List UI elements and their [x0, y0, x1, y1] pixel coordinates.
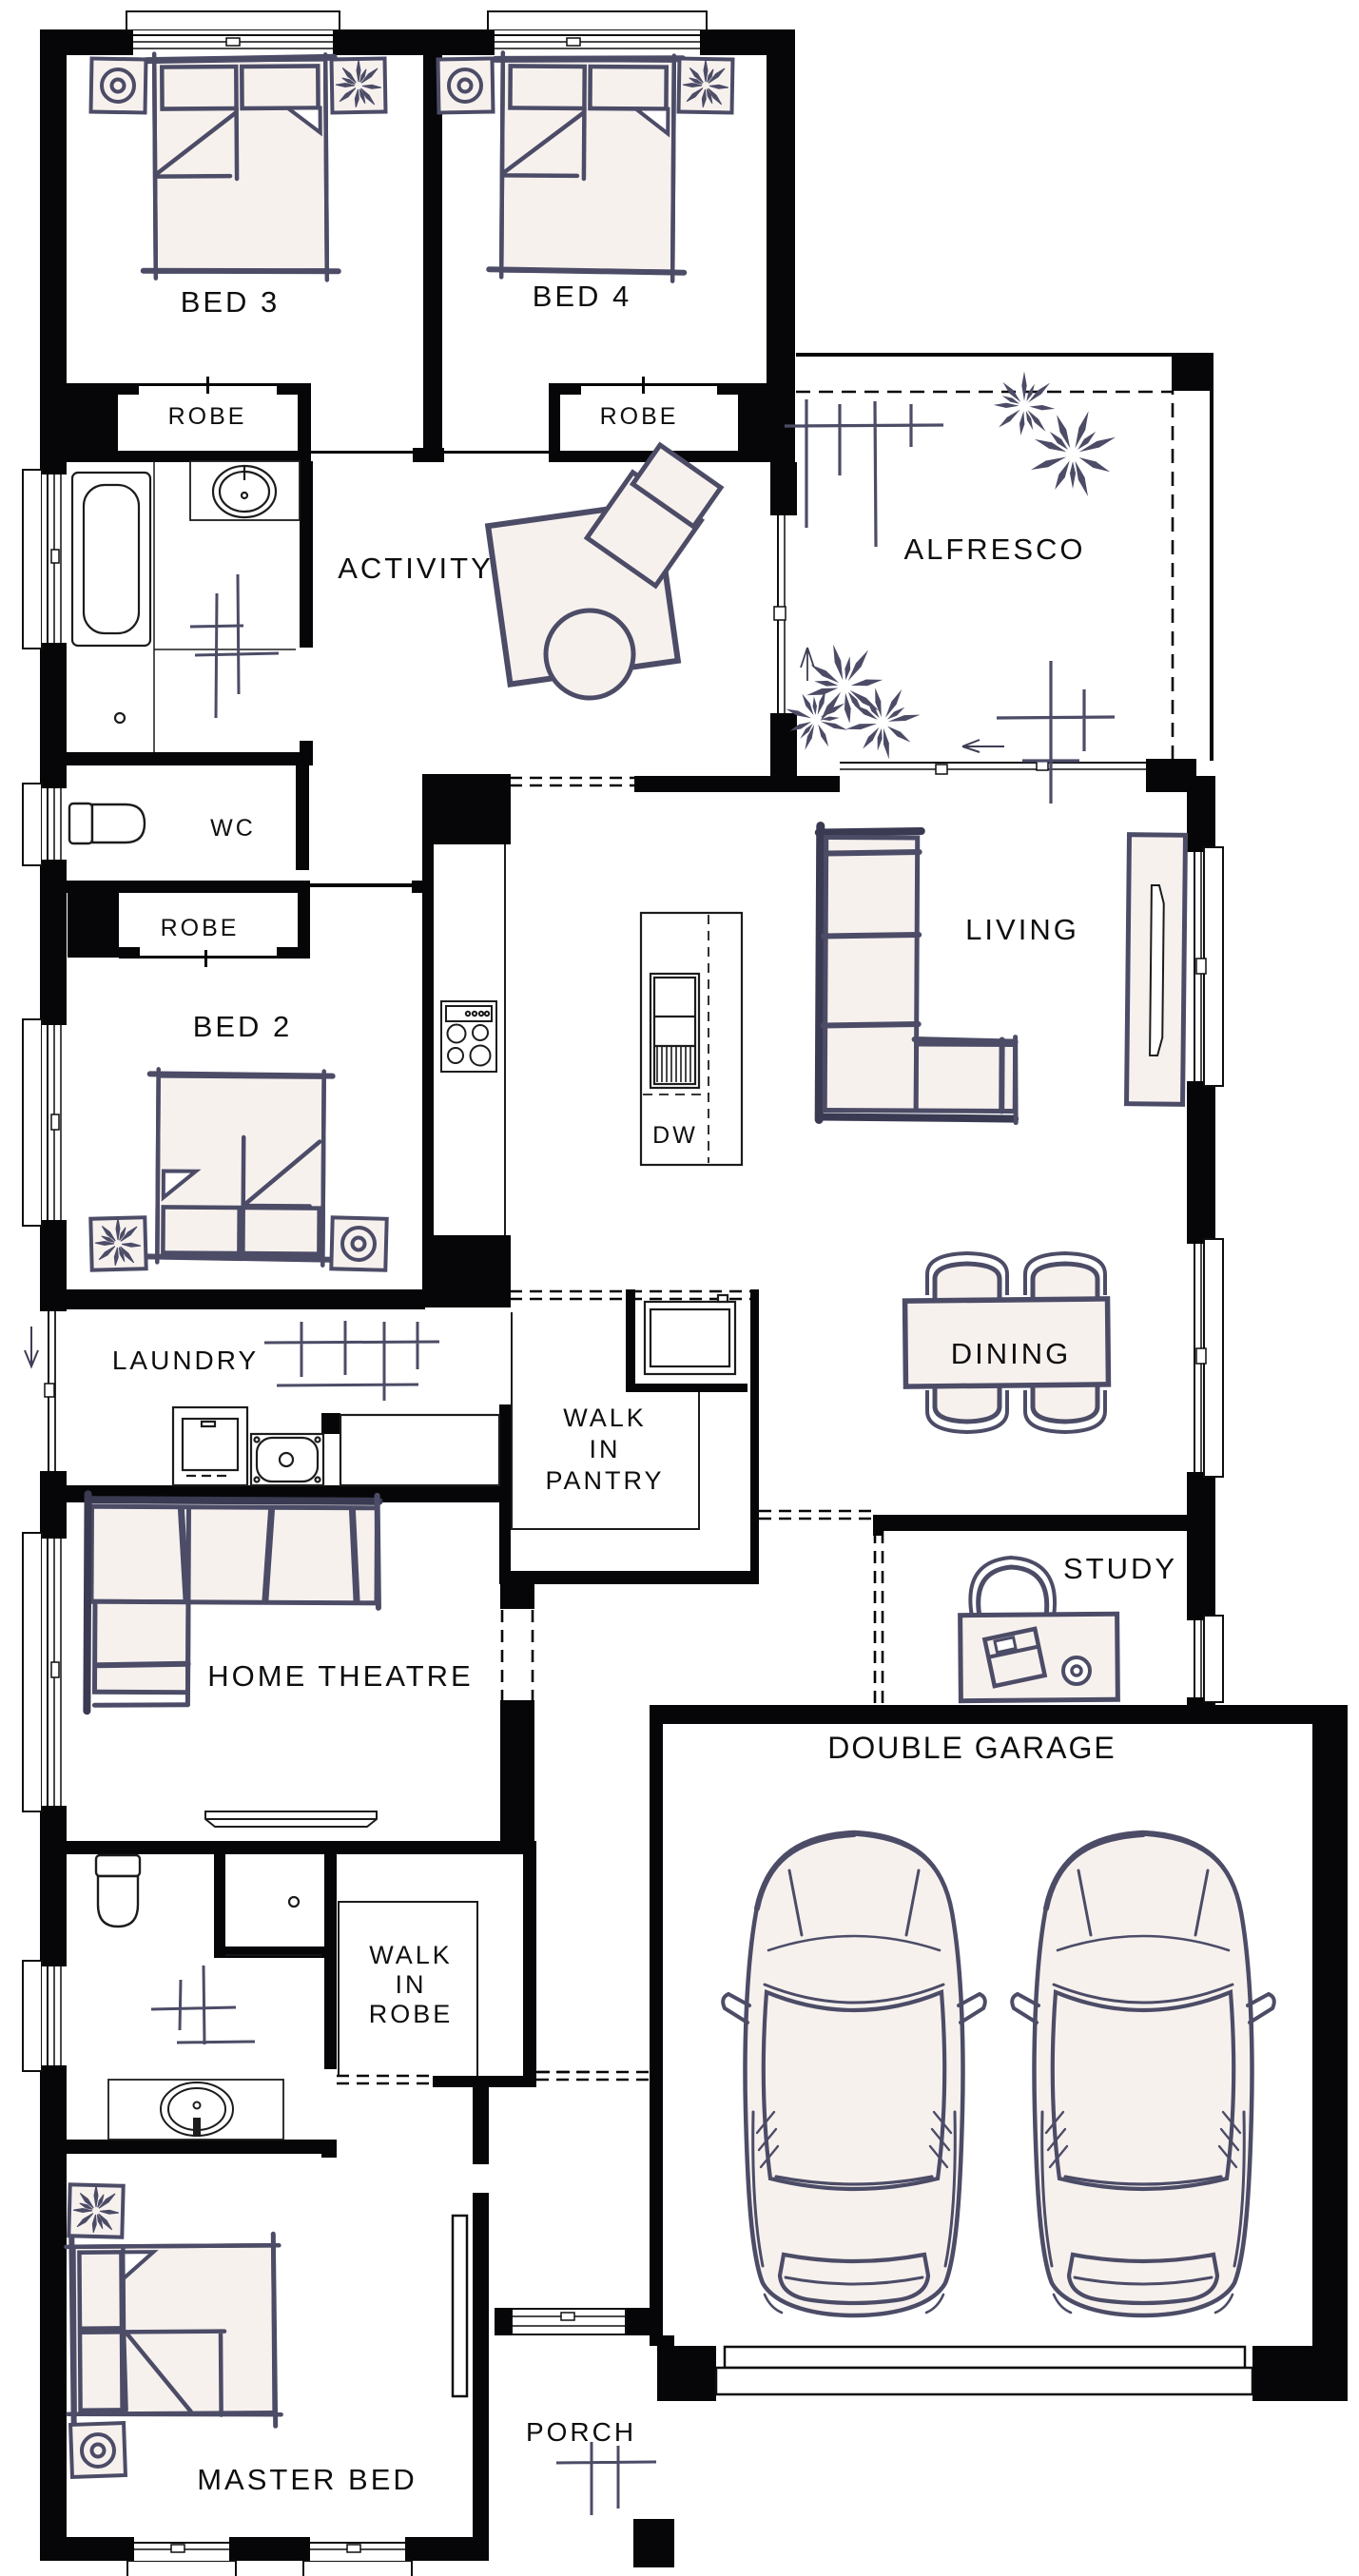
svg-text:MASTER BED: MASTER BED: [197, 2463, 417, 2496]
svg-text:WALK: WALK: [563, 1404, 647, 1432]
svg-text:BED 4: BED 4: [533, 280, 632, 313]
svg-text:BED 2: BED 2: [193, 1010, 293, 1043]
svg-text:ROBE: ROBE: [161, 915, 240, 941]
svg-text:IN: IN: [396, 1970, 427, 1999]
svg-text:LAUNDRY: LAUNDRY: [112, 1346, 259, 1375]
svg-text:PORCH: PORCH: [526, 2417, 636, 2447]
svg-text:ROBE: ROBE: [600, 403, 679, 430]
svg-text:DW: DW: [652, 1122, 698, 1149]
svg-text:LIVING: LIVING: [965, 913, 1079, 946]
svg-text:ALFRESCO: ALFRESCO: [903, 533, 1085, 566]
svg-text:HOME THEATRE: HOME THEATRE: [207, 1659, 473, 1693]
svg-text:BED 3: BED 3: [181, 285, 281, 319]
svg-text:WC: WC: [210, 815, 256, 842]
svg-text:ROBE: ROBE: [168, 403, 247, 430]
svg-text:IN: IN: [590, 1435, 621, 1463]
svg-text:WALK: WALK: [369, 1941, 453, 1969]
svg-text:DOUBLE GARAGE: DOUBLE GARAGE: [827, 1731, 1116, 1765]
svg-text:DINING: DINING: [951, 1337, 1072, 1370]
svg-text:ACTIVITY: ACTIVITY: [338, 552, 494, 585]
svg-text:STUDY: STUDY: [1063, 1552, 1177, 1585]
svg-text:ROBE: ROBE: [369, 2000, 454, 2028]
svg-text:PANTRY: PANTRY: [545, 1466, 664, 1495]
